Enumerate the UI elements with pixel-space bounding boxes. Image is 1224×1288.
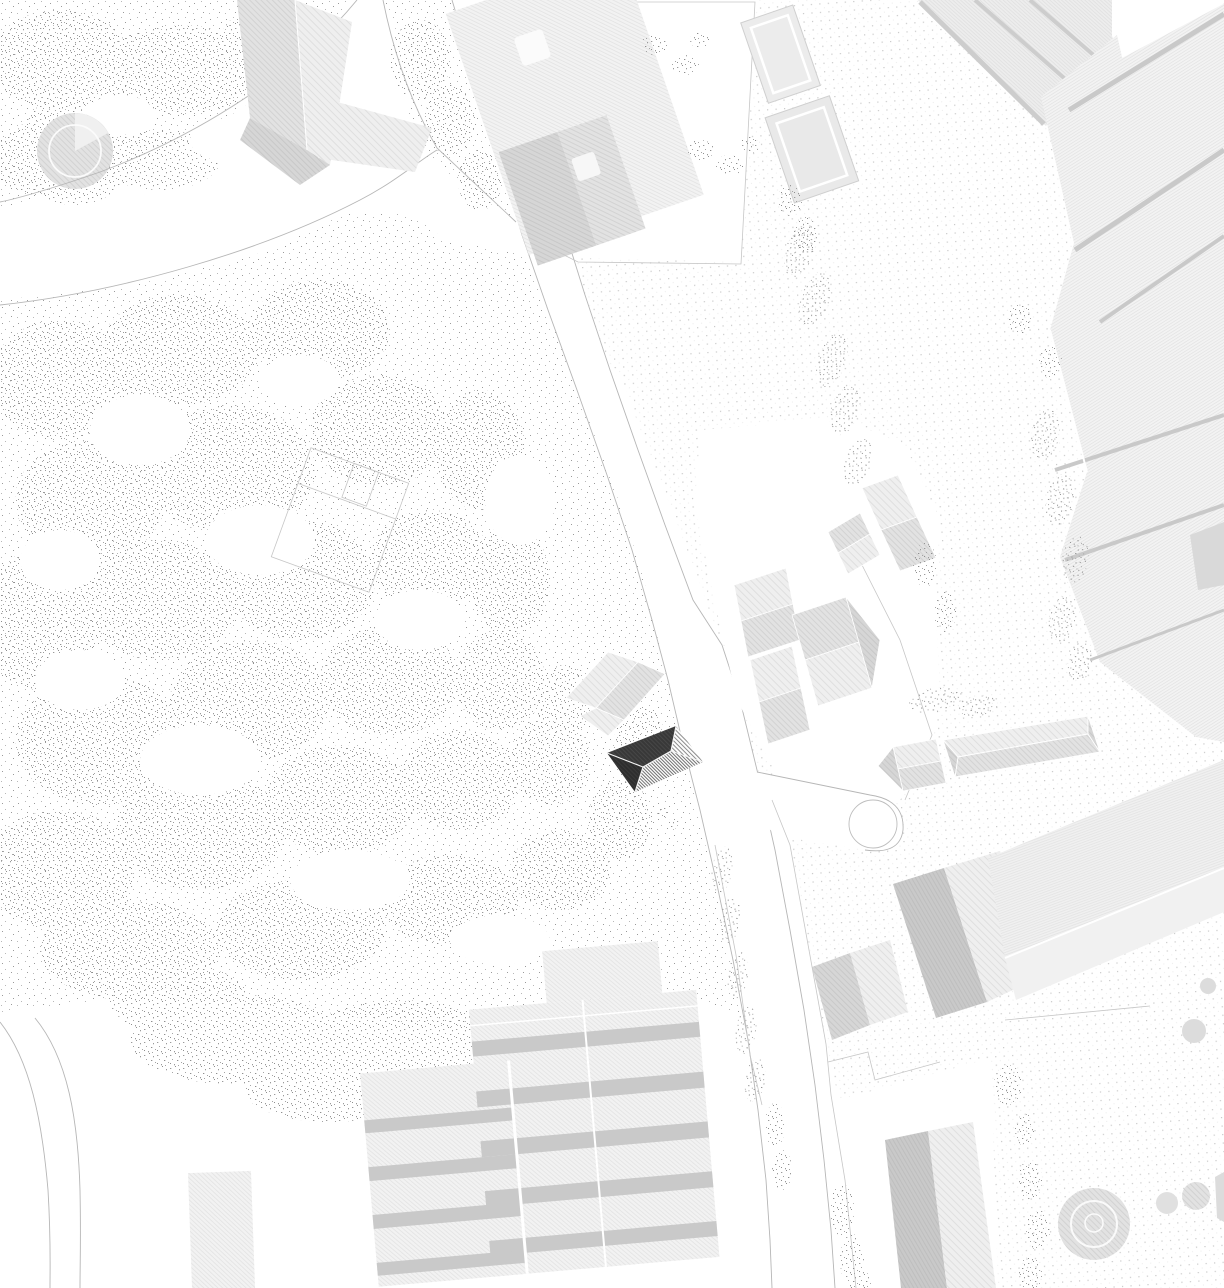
round-garden-feature <box>37 113 113 189</box>
plaza-tree <box>1182 1182 1210 1210</box>
plaza-tree <box>1156 1192 1178 1214</box>
turning-circle <box>849 800 897 848</box>
site-plan-map <box>0 0 1224 1288</box>
outbuilding-southwest <box>188 1171 255 1288</box>
